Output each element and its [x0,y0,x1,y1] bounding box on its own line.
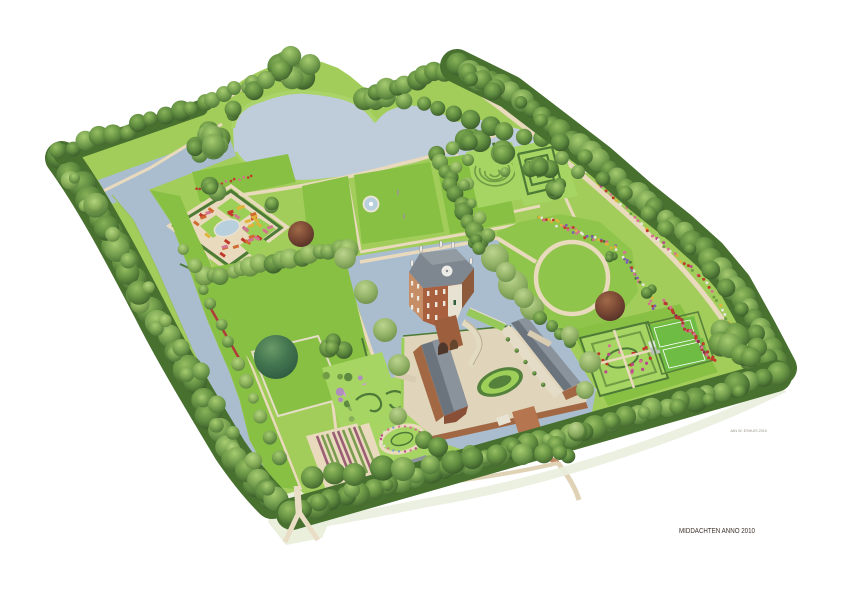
svg-text:JAN W. ESHUIS 2010: JAN W. ESHUIS 2010 [730,429,767,433]
svg-text:MIDDACHTEN ANNO 2010: MIDDACHTEN ANNO 2010 [679,528,755,535]
